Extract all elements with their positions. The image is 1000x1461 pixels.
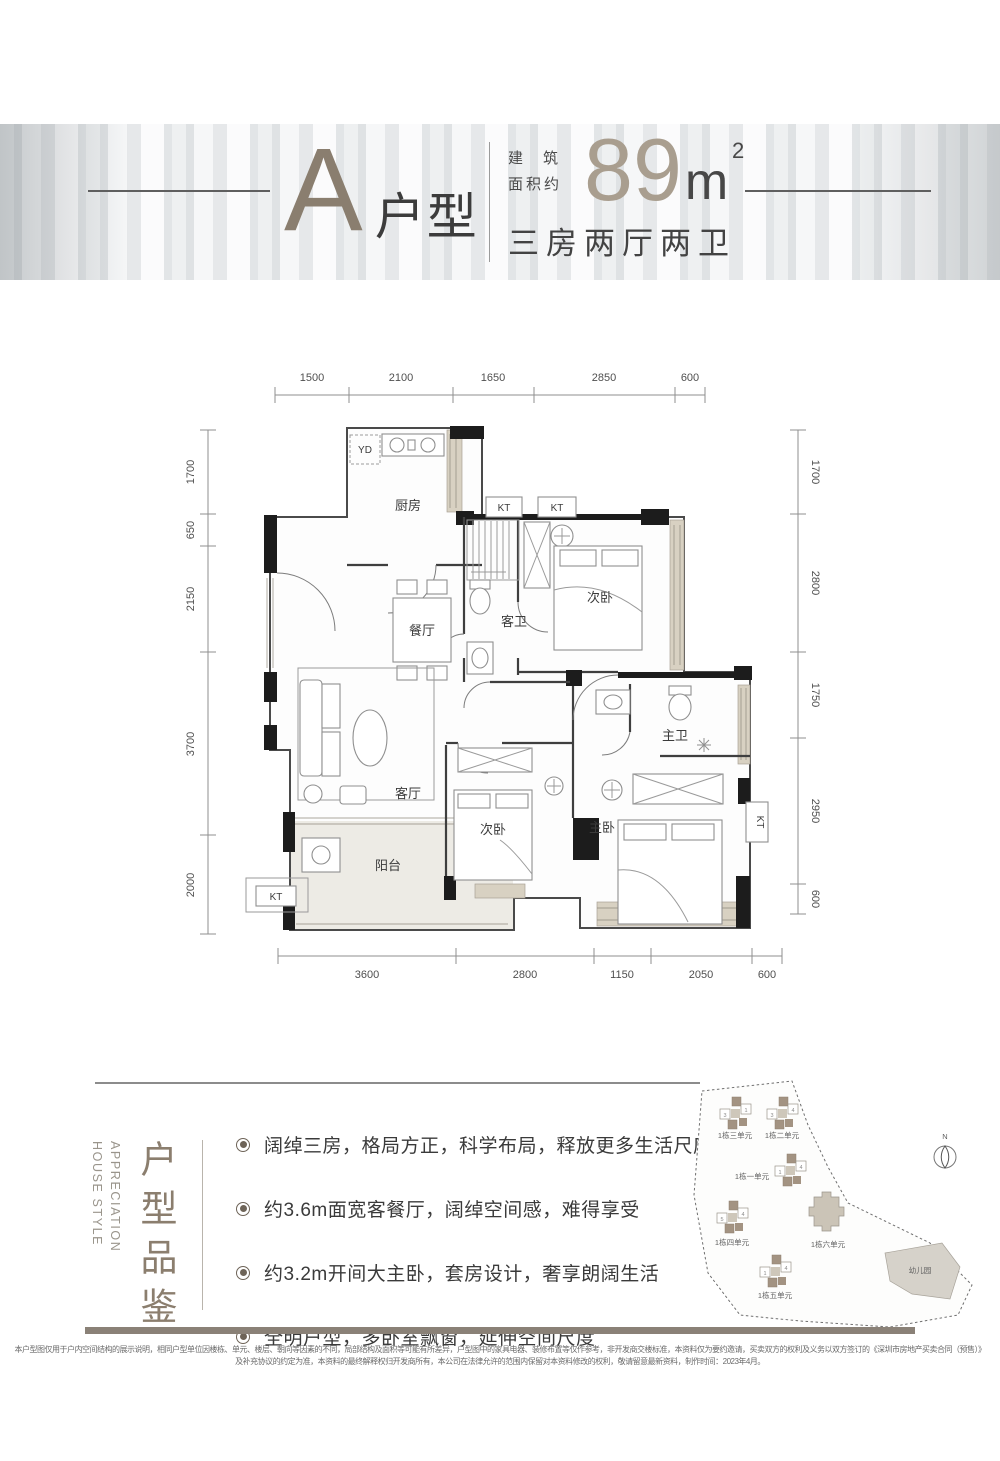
unit4-digit-2: 4 — [741, 1212, 744, 1218]
feature-item: 阔绰三房，格局方正，科学布局，释放更多生活尺度 — [236, 1131, 706, 1158]
room-label-master-bedroom: 主卧 — [589, 820, 615, 835]
area-prefix: 建筑 面积约 — [508, 146, 578, 199]
dim-left-2: 650 — [185, 521, 197, 539]
features-top-rule — [95, 1082, 700, 1084]
dim-right-5: 600 — [809, 890, 821, 908]
compass-n: N — [942, 1132, 947, 1141]
dimensions-top: 1500 2100 1650 2850 600 — [275, 372, 705, 403]
unit-type-label: 户型 — [375, 192, 479, 242]
features-title-en-2: APPRECIATION — [108, 1141, 122, 1252]
dim-bottom-3: 1150 — [610, 969, 634, 981]
area-block: 建筑 面积约 89 m2 三房两厅两卫 — [508, 134, 744, 263]
unit1-digit-1: 1 — [778, 1170, 781, 1176]
area-prefix-line2: 面积约 — [508, 172, 578, 198]
dim-right-3: 1750 — [809, 683, 821, 707]
header-divider — [489, 142, 490, 262]
floorplan-svg: 1500 2100 1650 2850 600 3600 2800 1150 2… — [150, 350, 850, 1020]
layout-description: 三房两厅两卫 — [508, 218, 744, 263]
dim-left-3: 2150 — [185, 587, 197, 611]
bullet-icon — [236, 1266, 250, 1280]
room-label-bedroom-top: 次卧 — [587, 590, 613, 605]
dim-right-4: 2950 — [809, 799, 821, 823]
dimensions-right: 1700 2800 1750 2950 600 — [790, 430, 821, 914]
unit5-digit-1: 1 — [763, 1271, 766, 1277]
dim-top-1: 1500 — [300, 372, 324, 384]
room-label-master-bath: 主卫 — [662, 728, 688, 743]
features-divider — [202, 1140, 203, 1310]
site-label-unit1: 1栋一单元 — [735, 1171, 770, 1181]
header-rule-left — [88, 190, 270, 192]
bullet-icon — [236, 1202, 250, 1216]
unit-letter: A — [284, 136, 363, 246]
dim-top-2: 2100 — [389, 372, 413, 384]
dim-left-4: 3700 — [185, 732, 197, 756]
area-unit-m: m — [685, 153, 728, 211]
unit3-digit-2: 1 — [744, 1108, 747, 1114]
unit3-digit-1: 3 — [723, 1113, 726, 1119]
room-label-kitchen: 厨房 — [395, 498, 421, 513]
area-prefix-line1: 建筑 — [508, 146, 578, 172]
features-title-en-1: HOUSE STYLE — [90, 1141, 104, 1246]
feature-text: 阔绰三房，格局方正，科学布局，释放更多生活尺度 — [264, 1131, 713, 1158]
dimensions-left: 1700 650 2150 3700 2000 — [185, 430, 216, 934]
north-compass-icon: N — [934, 1132, 956, 1168]
balcony-fixtures — [302, 838, 340, 872]
room-label-living: 客厅 — [395, 786, 421, 801]
feature-text: 约3.2m开间大主卧，套房设计，奢享朗阔生活 — [264, 1259, 659, 1286]
feature-item: 约3.2m开间大主卧，套房设计，奢享朗阔生活 — [236, 1259, 706, 1286]
header-rule-right — [745, 190, 931, 192]
yd-label: YD — [358, 445, 372, 456]
unit2-digit-2: 4 — [791, 1108, 794, 1114]
dim-right-2: 2800 — [809, 571, 821, 595]
area-number: 89 — [584, 134, 682, 206]
site-label-kindergarten: 幼儿园 — [909, 1265, 932, 1275]
dim-bottom-2: 2800 — [513, 969, 537, 981]
disclaimer: 本户型图仅用于户内空间结构的展示说明，相同户型单位因楼栋、单元、楼层、朝向等因素… — [0, 1344, 1000, 1369]
dim-left-1: 1700 — [185, 460, 197, 484]
dim-bottom-1: 3600 — [355, 969, 379, 981]
room-label-balcony: 阳台 — [375, 858, 401, 873]
site-label-unit5: 1栋五单元 — [758, 1290, 793, 1300]
dim-top-5: 600 — [681, 372, 699, 384]
unit5-digit-2: 4 — [784, 1266, 787, 1272]
area-unit: m2 — [685, 159, 744, 206]
unit-title: A 户型 — [284, 136, 479, 246]
dim-bottom-5: 600 — [758, 969, 776, 981]
kt-label-1: KT — [498, 503, 511, 514]
floorplan-poster: A 户型 建筑 面积约 89 m2 三房两厅两卫 — [0, 0, 1000, 1461]
siteplan-svg: 3 1 1栋三单元 3 4 1栋二单元 1 4 1栋一单元 — [680, 1075, 980, 1333]
unit2-digit-1: 3 — [770, 1113, 773, 1119]
kt-label-3: KT — [754, 816, 765, 829]
unit1-digit-2: 4 — [799, 1165, 802, 1171]
building-unit6 — [809, 1192, 844, 1231]
site-label-unit3: 1栋三单元 — [718, 1130, 753, 1140]
feature-item: 约3.6m面宽客餐厅，阔绰空间感，难得享受 — [236, 1195, 706, 1222]
kt-label-2: KT — [551, 503, 564, 514]
header-banner: A 户型 建筑 面积约 89 m2 三房两厅两卫 — [0, 124, 1000, 280]
unit4-digit-1: 5 — [720, 1217, 723, 1223]
footer-bar — [85, 1327, 915, 1334]
site-label-unit4: 1栋四单元 — [715, 1237, 750, 1247]
dim-left-5: 2000 — [185, 873, 197, 897]
dim-top-4: 2850 — [592, 372, 616, 384]
area-unit-sup: 2 — [732, 141, 744, 161]
kt-label-4: KT — [270, 892, 283, 903]
room-label-dining: 餐厅 — [409, 623, 435, 638]
room-label-guest-bath: 客卫 — [501, 614, 527, 629]
master-bedroom-furniture — [602, 774, 723, 924]
bullet-icon — [236, 1138, 250, 1152]
dimensions-bottom: 3600 2800 1150 2050 600 — [278, 948, 782, 981]
dim-bottom-4: 2050 — [689, 969, 713, 981]
disclaimer-line-1: 本户型图仅用于户内空间结构的展示说明，相同户型单位因楼栋、单元、楼层、朝向等因素… — [0, 1344, 1000, 1356]
dim-right-1: 1700 — [809, 460, 821, 484]
disclaimer-line-2: 及补充协议的约定为准，本资料的最终解释权归开发商所有，本公司在法律允许的范围内保… — [0, 1356, 1000, 1368]
dim-top-3: 1650 — [481, 372, 505, 384]
site-label-unit6: 1栋六单元 — [811, 1239, 846, 1249]
feature-text: 约3.6m面宽客餐厅，阔绰空间感，难得享受 — [264, 1195, 640, 1222]
features-title-cn: 户型品鉴 — [128, 1140, 182, 1336]
room-label-bedroom-mid: 次卧 — [480, 822, 506, 837]
site-label-unit2: 1栋二单元 — [765, 1130, 800, 1140]
